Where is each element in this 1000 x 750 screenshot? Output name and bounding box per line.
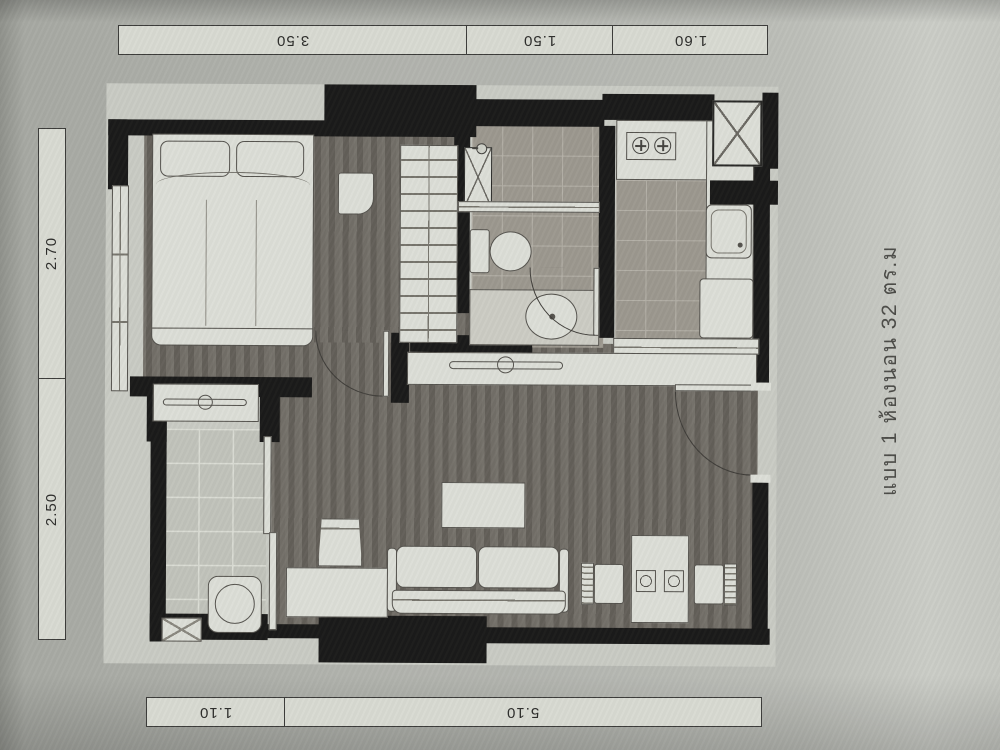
dim-label: 1.60 <box>674 32 707 49</box>
dim-segment: 1.60 <box>612 26 767 54</box>
wall <box>318 615 486 663</box>
shaft-icon <box>464 147 492 207</box>
plan-caption-text: แบบ 1 ห้องนอน 32 ตร.ม <box>874 244 907 495</box>
wall <box>752 483 769 645</box>
wall <box>602 94 714 121</box>
wardrobe <box>399 145 458 343</box>
dim-label: 2.70 <box>44 237 61 270</box>
floorplan-photo-page: 3.50 1.50 1.60 2.70 2.50 1.10 5.10 แบบ 1… <box>0 0 1000 750</box>
dining-chair-seat <box>694 564 724 604</box>
door-threshold <box>751 383 771 391</box>
tv-console-circle <box>497 356 514 373</box>
dim-label: 5.10 <box>506 704 539 721</box>
toilet-bowl <box>490 231 532 271</box>
dimension-bar-bottom: 1.10 5.10 <box>146 697 762 727</box>
stove-burner-icon <box>654 137 671 154</box>
dining-chair-back <box>581 563 594 605</box>
sliding-door-panel <box>269 532 278 630</box>
dimension-bar-left: 2.70 2.50 <box>38 128 66 640</box>
sofa-cushion <box>478 546 559 588</box>
sliding-door-panel <box>263 436 272 534</box>
dim-segment: 1.50 <box>466 26 613 54</box>
wall <box>598 126 615 338</box>
dining-chair-seat <box>594 564 624 604</box>
dimension-bar-top: 3.50 1.50 1.60 <box>118 25 768 55</box>
door-threshold <box>750 475 770 483</box>
place-setting <box>636 570 656 592</box>
stove-burner-icon <box>632 137 649 154</box>
dim-label: 3.50 <box>276 32 309 49</box>
kitchen-floor <box>615 180 708 342</box>
wall <box>108 119 128 189</box>
sink-drain <box>738 243 743 248</box>
wall <box>150 383 167 641</box>
nightstand <box>338 172 374 214</box>
bed-footboard <box>151 327 313 346</box>
toilet-tank <box>470 229 490 273</box>
wall <box>260 382 280 442</box>
balcony-drain-box <box>162 618 202 642</box>
tv-console <box>407 352 757 387</box>
place-setting <box>664 570 684 592</box>
sofa-back <box>392 590 566 615</box>
dim-segment: 2.50 <box>39 378 65 639</box>
wall <box>484 627 770 644</box>
shower-screen <box>458 201 600 213</box>
dim-segment: 2.70 <box>39 129 65 378</box>
sofa-cushion <box>396 546 477 588</box>
dim-segment: 1.10 <box>147 698 284 726</box>
dim-label: 1.10 <box>199 704 232 721</box>
wall <box>762 93 778 169</box>
bedroom-door-leaf <box>383 331 389 397</box>
bedroom-window <box>111 185 129 391</box>
dining-chair-back <box>724 563 737 605</box>
floorplan-drawing <box>103 83 778 667</box>
dim-segment: 5.10 <box>284 698 761 726</box>
coffee-table <box>441 482 525 528</box>
washing-machine-drum <box>215 584 255 624</box>
bed-sheet-line <box>156 172 310 199</box>
fridge <box>699 278 753 338</box>
dim-label: 1.50 <box>523 32 556 49</box>
shaft-icon <box>712 100 762 166</box>
sideboard <box>286 567 388 618</box>
wall <box>472 99 604 127</box>
side-table <box>318 518 362 566</box>
plan-caption: แบบ 1 ห้องนอน 32 ตร.ม <box>862 165 918 575</box>
dim-segment: 3.50 <box>119 26 466 54</box>
dim-label: 2.50 <box>44 492 61 525</box>
shower-arm <box>472 147 478 149</box>
dresser-circle <box>198 395 213 410</box>
